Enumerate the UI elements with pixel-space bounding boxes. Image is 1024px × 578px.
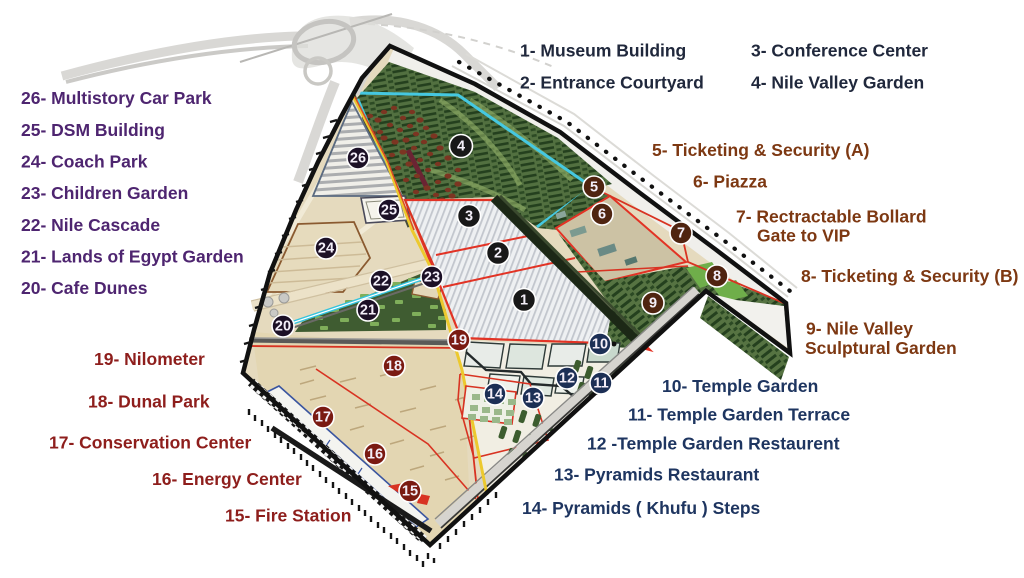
svg-text:23: 23 — [424, 270, 440, 286]
svg-text:7: 7 — [677, 226, 685, 242]
svg-text:20- Cafe Dunes: 20- Cafe Dunes — [21, 278, 148, 298]
svg-text:18- Dunal Park: 18- Dunal Park — [88, 392, 210, 412]
svg-text:7- Rectractable Bollard: 7- Rectractable Bollard — [736, 207, 927, 227]
svg-text:13: 13 — [525, 391, 541, 407]
svg-text:14- Pyramids ( Khufu ) Steps: 14- Pyramids ( Khufu ) Steps — [522, 498, 761, 518]
svg-text:9: 9 — [649, 296, 657, 312]
svg-text:14: 14 — [487, 387, 503, 403]
svg-text:5: 5 — [590, 180, 598, 196]
svg-text:3: 3 — [465, 209, 473, 225]
svg-text:3- Conference Center: 3- Conference Center — [751, 41, 928, 61]
svg-text:2: 2 — [494, 246, 502, 262]
svg-text:22: 22 — [373, 274, 389, 290]
svg-text:11- Temple Garden Terrace: 11- Temple Garden Terrace — [628, 405, 850, 425]
svg-text:16: 16 — [367, 447, 383, 463]
svg-text:8- Ticketing & Security (B): 8- Ticketing & Security (B) — [801, 266, 1019, 286]
svg-text:24: 24 — [318, 241, 334, 257]
svg-text:Sculptural Garden: Sculptural Garden — [805, 338, 957, 358]
svg-text:20: 20 — [275, 319, 291, 335]
svg-text:12 -Temple Garden Restaurent: 12 -Temple Garden Restaurent — [587, 434, 840, 454]
svg-text:10: 10 — [592, 337, 608, 353]
svg-text:Gate to VIP: Gate to VIP — [757, 226, 851, 246]
svg-text:25: 25 — [381, 203, 397, 219]
svg-text:15: 15 — [402, 484, 418, 500]
svg-text:19- Nilometer: 19- Nilometer — [94, 349, 205, 369]
svg-text:5- Ticketing & Security (A): 5- Ticketing & Security (A) — [652, 140, 870, 160]
svg-text:4- Nile Valley Garden: 4- Nile Valley Garden — [751, 73, 924, 93]
svg-text:25- DSM Building: 25- DSM Building — [21, 120, 165, 140]
svg-text:9- Nile Valley: 9- Nile Valley — [806, 319, 913, 339]
svg-text:8: 8 — [713, 269, 721, 285]
svg-text:15- Fire Station: 15- Fire Station — [225, 506, 351, 526]
svg-text:23- Children Garden: 23- Children Garden — [21, 183, 188, 203]
svg-text:1- Museum Building: 1- Museum Building — [520, 41, 686, 61]
svg-text:6: 6 — [598, 207, 606, 223]
svg-text:2- Entrance Courtyard: 2- Entrance Courtyard — [520, 73, 704, 93]
svg-text:10- Temple Garden: 10- Temple Garden — [662, 376, 818, 396]
svg-text:17- Conservation Center: 17- Conservation Center — [49, 433, 251, 453]
svg-text:16- Energy Center: 16- Energy Center — [152, 469, 302, 489]
svg-text:18: 18 — [386, 359, 402, 375]
svg-text:21: 21 — [360, 303, 376, 319]
svg-text:26- Multistory Car Park: 26- Multistory Car Park — [21, 88, 212, 108]
svg-text:12: 12 — [559, 371, 575, 387]
svg-text:4: 4 — [457, 139, 465, 155]
svg-text:26: 26 — [350, 151, 366, 167]
svg-text:22- Nile Cascade: 22- Nile Cascade — [21, 215, 160, 235]
svg-text:11: 11 — [593, 376, 608, 392]
svg-text:13- Pyramids Restaurant: 13- Pyramids Restaurant — [554, 465, 759, 485]
svg-text:19: 19 — [451, 333, 467, 349]
svg-text:6- Piazza: 6- Piazza — [693, 172, 767, 192]
svg-text:21- Lands of Egypt Garden: 21- Lands of Egypt Garden — [21, 247, 244, 267]
svg-text:24- Coach Park: 24- Coach Park — [21, 152, 148, 172]
svg-text:1: 1 — [520, 293, 528, 309]
svg-text:17: 17 — [315, 410, 331, 426]
